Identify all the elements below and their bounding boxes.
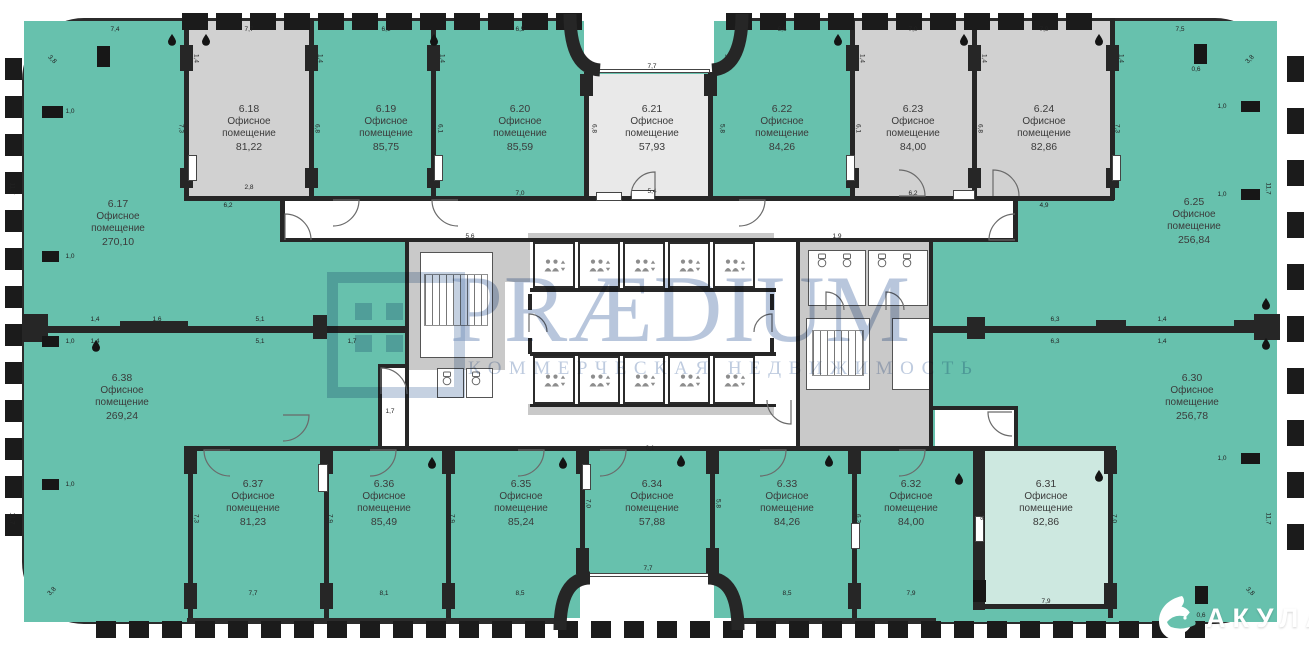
dimension-label: 2,8 (244, 184, 253, 191)
dimension-label: 1,7 (385, 408, 394, 415)
room-type-line: помещение (326, 128, 446, 141)
dimension-label: 6,8 (314, 124, 321, 133)
dimension-label: 6,3 (1050, 338, 1059, 345)
wall (530, 352, 776, 356)
room-number: 6.35 (461, 478, 581, 491)
room-6.17 (24, 21, 187, 329)
dimension-label: 5,1 (255, 316, 264, 323)
facade-pier (1287, 264, 1304, 290)
facade-pier (930, 13, 956, 30)
facade-pier (1020, 621, 1040, 638)
room-type-line: помещение (986, 503, 1106, 516)
shaft (42, 106, 63, 118)
wall (933, 406, 1018, 410)
wall (528, 338, 532, 354)
room-area: 57,93 (592, 141, 712, 154)
toilet-fixture (816, 253, 828, 268)
room-area: 57,88 (592, 516, 712, 529)
elevator-passengers-icon (586, 374, 612, 387)
toilet-icon (841, 253, 853, 268)
dimension-label: 7,0 (908, 26, 917, 33)
room-type-line: Офисное (62, 385, 182, 398)
room-label-6.25: 6.25Офисноепомещение256,84 (1134, 196, 1254, 246)
toilet-icon (901, 253, 913, 268)
wall (184, 583, 197, 609)
elevator-cell (533, 242, 575, 288)
facade-pier (182, 13, 208, 30)
elevator-passengers-icon (541, 374, 567, 387)
shaft (1241, 101, 1260, 112)
facade-pier (1287, 472, 1304, 498)
facade-pier (5, 286, 22, 308)
facade-pier (624, 621, 644, 638)
dimension-label: 7,7 (647, 63, 656, 70)
dimension-label: 1,4 (1118, 54, 1125, 63)
facade-pier (216, 13, 242, 30)
facade-pier (492, 621, 512, 638)
dimension-label: 8,1 (379, 590, 388, 597)
room-label-6.36: 6.36Офисноепомещение85,49 (324, 478, 444, 528)
toilet-fixture (441, 371, 453, 386)
dimension-label: 11,7 (1265, 182, 1272, 194)
elevator-cell (578, 356, 620, 404)
facade-pier (1287, 524, 1304, 550)
dimension-label: 11,7 (1265, 512, 1272, 524)
wall (378, 364, 409, 368)
room-type-line: помещение (727, 503, 847, 516)
room-label-6.24: 6.24Офисноепомещение82,86 (984, 103, 1104, 153)
wall (968, 168, 981, 188)
shaft (97, 46, 110, 67)
facade-pier (1287, 368, 1304, 394)
room-type-line: помещение (1134, 221, 1254, 234)
wall (968, 45, 981, 71)
facade-pier (591, 621, 611, 638)
dimension-label: 1,7 (347, 338, 356, 345)
room-label-6.37: 6.37Офисноепомещение81,23 (193, 478, 313, 528)
dimension-label: 7,9 (1039, 26, 1048, 33)
facade-pier (954, 621, 974, 638)
facade-pier (5, 438, 22, 460)
dimension-label: 7,4 (110, 26, 119, 33)
shaft (42, 479, 59, 490)
toilet-icon (470, 371, 482, 386)
dimension-label: 6,2 (223, 202, 232, 209)
facade-pier (5, 96, 22, 118)
dimension-label: 1,6 (152, 316, 161, 323)
door-threshold (434, 155, 443, 181)
facade-pier (657, 621, 677, 638)
dimension-label: 0,6 (1191, 66, 1200, 73)
wall (1104, 450, 1117, 474)
facade-pier (1119, 621, 1139, 638)
agency-logo-text: АКУЛА (1206, 603, 1309, 634)
facade-pier (794, 13, 820, 30)
dimension-label: 11,7 (9, 182, 16, 194)
elevator-cell (623, 242, 665, 288)
room-type-line: Офисное (853, 116, 973, 129)
room-type-line: помещение (62, 397, 182, 410)
room-type-line: Офисное (460, 116, 580, 129)
wall (848, 583, 861, 609)
room-number: 6.21 (592, 103, 712, 116)
elevator-cell (713, 242, 755, 288)
door-threshold (588, 573, 712, 577)
core-wall-band (503, 242, 530, 282)
room-type-line: помещение (58, 223, 178, 236)
facade-pier (726, 13, 752, 30)
facade-pier (1287, 420, 1304, 446)
wall (378, 364, 382, 448)
wall (580, 74, 593, 96)
wall (846, 45, 859, 71)
wall (796, 242, 800, 448)
wall (1254, 314, 1280, 340)
room-type-line: Офисное (1132, 385, 1252, 398)
room-number: 6.34 (592, 478, 712, 491)
room-number: 6.19 (326, 103, 446, 116)
facade-pier (855, 621, 875, 638)
facade-pier (1287, 160, 1304, 186)
shark-icon (1158, 596, 1200, 640)
dimension-label: 6,6 (777, 26, 786, 33)
facade-pier (1066, 13, 1092, 30)
wall (770, 338, 774, 354)
facade-pier (525, 621, 545, 638)
facade-pier (360, 621, 380, 638)
facade-pier (352, 13, 378, 30)
toilet-icon (441, 371, 453, 386)
core-room (892, 318, 931, 390)
elevator-passengers-icon (721, 374, 747, 387)
shaft (973, 580, 986, 602)
shaft (42, 336, 59, 347)
dimension-label: 1,0 (1217, 455, 1226, 462)
dimension-label: 1,4 (724, 54, 731, 63)
room-type-line: Офисное (189, 116, 309, 129)
room-number: 6.37 (193, 478, 313, 491)
wall (704, 74, 717, 96)
facade-pier (327, 621, 347, 638)
facade-pier (723, 621, 743, 638)
room-type-line: Офисное (461, 491, 581, 504)
facade-pier (1086, 621, 1106, 638)
dimension-label: 1,4 (90, 316, 99, 323)
facade-pier (195, 621, 215, 638)
room-label-6.35: 6.35Офисноепомещение85,24 (461, 478, 581, 528)
facade-pier (1287, 56, 1304, 82)
room-number: 6.23 (853, 103, 973, 116)
room-area: 269,24 (62, 410, 182, 423)
facade-pier (1053, 621, 1073, 638)
facade-pier (5, 362, 22, 384)
dimension-label: 5,6 (465, 233, 474, 240)
dimension-label: 7,0 (585, 499, 592, 508)
facade-pier (558, 621, 578, 638)
room-area: 82,86 (984, 141, 1104, 154)
toilet-icon (876, 253, 888, 268)
room-label-6.22: 6.22Офисноепомещение84,26 (722, 103, 842, 153)
dimension-label: 1,0 (65, 481, 74, 488)
room-number: 6.30 (1132, 372, 1252, 385)
dimension-label: 1,4 (439, 54, 446, 63)
room-area: 84,00 (853, 141, 973, 154)
room-number: 6.36 (324, 478, 444, 491)
room-number: 6.18 (189, 103, 309, 116)
dimension-label: 8,5 (782, 590, 791, 597)
facade-pier (294, 621, 314, 638)
elevator-cell (623, 356, 665, 404)
facade-pier (690, 621, 710, 638)
facade-recess (556, 577, 738, 629)
facade-pier (862, 13, 888, 30)
wall (22, 326, 407, 333)
door-threshold (1112, 155, 1121, 181)
room-number: 6.22 (722, 103, 842, 116)
facade-pier (284, 13, 310, 30)
wall (706, 450, 719, 474)
room-type-line: помещение (853, 128, 973, 141)
room-type-line: помещение (1132, 397, 1252, 410)
facade-pier (318, 13, 344, 30)
wall (313, 315, 327, 339)
room-type-line: помещение (592, 128, 712, 141)
wall (305, 168, 318, 188)
facade-pier (5, 248, 22, 270)
dimension-label: 1,4 (1157, 338, 1166, 345)
wall (576, 548, 589, 574)
facade-pier (987, 621, 1007, 638)
wall (528, 294, 532, 310)
stair-treads (424, 274, 488, 326)
room-area: 256,84 (1134, 234, 1254, 247)
dimension-label: 6,3 (1050, 316, 1059, 323)
room-label-6.31: 6.31Офисноепомещение82,86 (986, 478, 1106, 528)
toilet-icon (816, 253, 828, 268)
room-type-line: Офисное (324, 491, 444, 504)
room-type-line: Офисное (58, 211, 178, 224)
facade-pier (556, 13, 582, 30)
room-type-line: Офисное (193, 491, 313, 504)
elevator-cell (668, 242, 710, 288)
facade-pier (522, 13, 548, 30)
shaft (42, 251, 59, 262)
room-area: 84,26 (727, 516, 847, 529)
facade-pier (250, 13, 276, 30)
facade-pier (420, 13, 446, 30)
wall (405, 238, 409, 450)
room-type-line: помещение (189, 128, 309, 141)
facade-pier (488, 13, 514, 30)
dimension-label: 1,9 (832, 233, 841, 240)
facade-pier (228, 621, 248, 638)
dimension-label: 5,1 (255, 338, 264, 345)
stair-treads (812, 330, 864, 376)
facade-pier (964, 13, 990, 30)
dimension-label: 7,0 (515, 190, 524, 197)
room-area: 84,00 (851, 516, 971, 529)
room-type-line: Офисное (326, 116, 446, 129)
wall (706, 548, 719, 574)
facade-pier (828, 13, 854, 30)
facade-pier (5, 210, 22, 232)
dimension-label: 1,0 (1217, 103, 1226, 110)
dimension-label: 7,9 (1041, 598, 1050, 605)
dimension-label: 11,7 (9, 512, 16, 524)
room-type-line: помещение (193, 503, 313, 516)
room-type-line: помещение (984, 128, 1104, 141)
room-label-6.21: 6.21Офисноепомещение57,93 (592, 103, 712, 153)
facade-pier (1287, 108, 1304, 134)
elevator-cell (578, 242, 620, 288)
dimension-label: 6,1 (381, 26, 390, 33)
dimension-label: 1,0 (65, 253, 74, 260)
wall (929, 238, 933, 450)
dimension-label: 1,4 (981, 54, 988, 63)
room-area: 85,75 (326, 141, 446, 154)
elevator-cell (668, 356, 710, 404)
facade-pier (1287, 316, 1304, 342)
dimension-label: 7,0 (1111, 514, 1118, 523)
dimension-label: 1,4 (193, 54, 200, 63)
door-threshold (582, 464, 591, 490)
room-type-line: Офисное (592, 491, 712, 504)
facade-pier (756, 621, 776, 638)
room-label-6.19: 6.19Офисноепомещение85,75 (326, 103, 446, 153)
dimension-label: 4,9 (1039, 202, 1048, 209)
room-area: 85,49 (324, 516, 444, 529)
room-6.37 (192, 450, 324, 618)
wall (442, 450, 455, 474)
wall (848, 450, 861, 474)
core-area (935, 408, 1018, 446)
dimension-label: 1,0 (65, 338, 74, 345)
room-area: 85,24 (461, 516, 581, 529)
room-type-line: помещение (461, 503, 581, 516)
door-threshold (953, 190, 975, 200)
dimension-label: 7,3 (178, 124, 185, 133)
room-type-line: помещение (324, 503, 444, 516)
facade-pier (426, 621, 446, 638)
room-area: 256,78 (1132, 410, 1252, 423)
elevator-cell (533, 356, 575, 404)
facade-pier (162, 621, 182, 638)
elevator-passengers-icon (586, 259, 612, 272)
facade-pier (998, 13, 1024, 30)
facade-pier (459, 621, 479, 638)
facade-pier (789, 621, 809, 638)
dimension-label: 1,0 (65, 108, 74, 115)
dimension-label: 1,4 (859, 54, 866, 63)
room-area: 270,10 (58, 236, 178, 249)
wall (184, 450, 197, 474)
agency-logo: АКУЛА (1158, 596, 1309, 640)
facade-pier (822, 621, 842, 638)
dimension-label: 5,8 (715, 499, 722, 508)
room-number: 6.31 (986, 478, 1106, 491)
dimension-label: 5,4 (647, 188, 656, 195)
room-number: 6.20 (460, 103, 580, 116)
room-type-line: Офисное (986, 491, 1106, 504)
facade-pier (1287, 212, 1304, 238)
room-type-line: помещение (460, 128, 580, 141)
dimension-label: 6,8 (979, 511, 986, 520)
room-type-line: Офисное (1134, 209, 1254, 222)
shaft (1194, 44, 1207, 64)
room-area: 82,86 (986, 516, 1106, 529)
wall (967, 317, 985, 339)
door-threshold (596, 192, 622, 201)
wall (530, 404, 776, 407)
dimension-label: 1,4 (90, 338, 99, 345)
wall (280, 238, 1017, 242)
room-label-6.20: 6.20Офисноепомещение85,59 (460, 103, 580, 153)
toilet-fixture (470, 371, 482, 386)
dimension-label: 6,1 (645, 445, 654, 452)
elevator-passengers-icon (676, 374, 702, 387)
room-label-6.34: 6.34Офисноепомещение57,88 (592, 478, 712, 528)
dimension-label: 7,7 (248, 590, 257, 597)
elevator-passengers-icon (721, 259, 747, 272)
facade-pier (96, 621, 116, 638)
wall (180, 45, 193, 71)
shaft (1241, 453, 1260, 464)
dimension-label: 1,4 (317, 54, 324, 63)
room-label-6.33: 6.33Офисноепомещение84,26 (727, 478, 847, 528)
facade-pier (261, 621, 281, 638)
room-label-6.23: 6.23Офисноепомещение84,00 (853, 103, 973, 153)
room-area: 85,59 (460, 141, 580, 154)
room-label-6.18: 6.18Офисноепомещение81,22 (189, 103, 309, 153)
dimension-label: 1,4 (1157, 316, 1166, 323)
room-area: 81,22 (189, 141, 309, 154)
door-threshold (188, 155, 197, 181)
room-type-line: Офисное (984, 116, 1104, 129)
room-type-line: Офисное (722, 116, 842, 129)
wall (770, 294, 774, 310)
room-area: 84,26 (722, 141, 842, 154)
room-area: 81,23 (193, 516, 313, 529)
toilet-fixture (901, 253, 913, 268)
room-number: 6.32 (851, 478, 971, 491)
wall (442, 583, 455, 609)
toilet-fixture (876, 253, 888, 268)
facade-pier (129, 621, 149, 638)
room-type-line: Офисное (727, 491, 847, 504)
elevator-cell (713, 356, 755, 404)
dimension-label: 6,2 (908, 190, 917, 197)
facade-pier (5, 134, 22, 156)
facade-pier (5, 324, 22, 346)
wall (1096, 320, 1126, 332)
dimension-label: 6,5 (515, 26, 524, 33)
wall (1013, 196, 1018, 242)
dimension-label: 8,5 (515, 590, 524, 597)
elevator-passengers-icon (631, 374, 657, 387)
wall (280, 196, 285, 242)
dimension-label: 6,8 (977, 124, 984, 133)
dimension-label: 7,3 (1114, 124, 1121, 133)
floor-plan: 7,47,76,16,57,76,67,07,97,51,41,41,41,41… (0, 0, 1309, 655)
dimension-label: 7,5 (1175, 26, 1184, 33)
wall (530, 288, 776, 292)
room-number: 6.24 (984, 103, 1104, 116)
facade-pier (888, 621, 908, 638)
elevator-passengers-icon (676, 259, 702, 272)
room-number: 6.38 (62, 372, 182, 385)
room-label-6.32: 6.32Офисноепомещение84,00 (851, 478, 971, 528)
facade-pier (393, 621, 413, 638)
